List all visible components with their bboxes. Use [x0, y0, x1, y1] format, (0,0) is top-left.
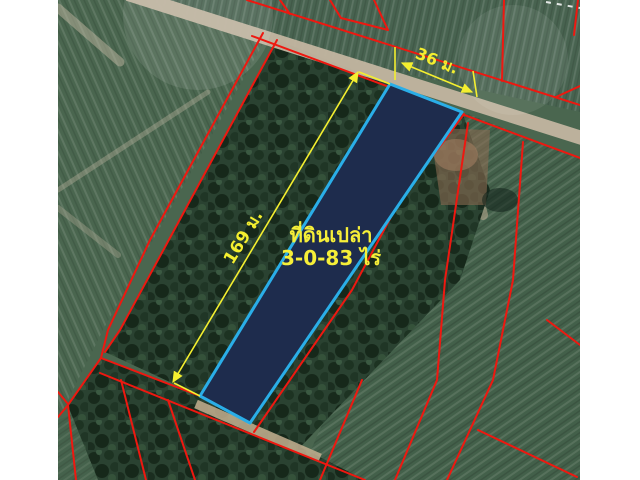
parcel-title-label: ที่ดินเปล่า: [290, 220, 373, 247]
parcel-area-label: 3-0-83 ไร่: [281, 246, 381, 270]
satellite-map-graphic: 169 ม. 36 ม. ที่ดินเปล่า 3-0-83 ไร่: [58, 0, 580, 480]
listing-image-canvas: 169 ม. 36 ม. ที่ดินเปล่า 3-0-83 ไร่: [0, 0, 640, 480]
satellite-map: 169 ม. 36 ม. ที่ดินเปล่า 3-0-83 ไร่: [58, 0, 580, 480]
